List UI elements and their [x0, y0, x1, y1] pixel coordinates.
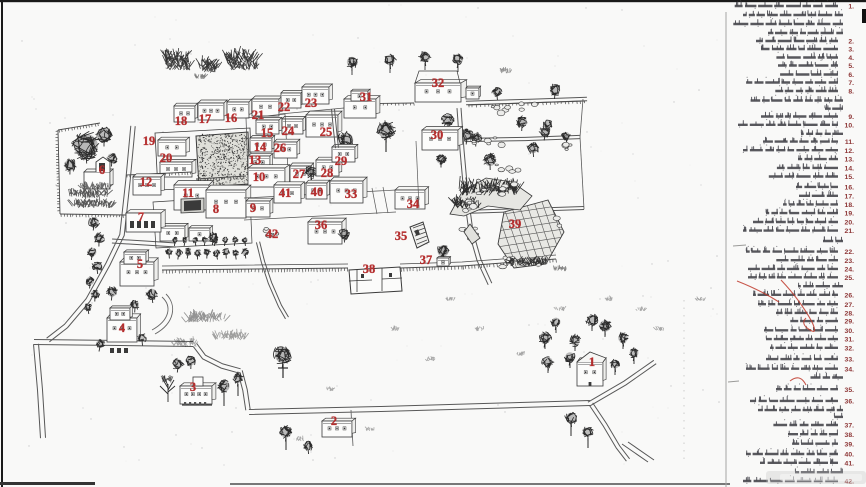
svg-text:4.: 4.	[848, 55, 854, 62]
svg-text:33.: 33.	[845, 357, 855, 364]
svg-text:15.: 15.	[845, 174, 855, 181]
svg-text:2.: 2.	[848, 39, 854, 46]
svg-text:41: 41	[279, 186, 291, 200]
svg-text:18: 18	[175, 114, 187, 128]
svg-text:14.: 14.	[845, 166, 855, 173]
svg-text:32.: 32.	[845, 345, 855, 352]
svg-text:8.: 8.	[848, 89, 854, 96]
svg-text:30.: 30.	[845, 328, 855, 335]
svg-text:12.: 12.	[845, 148, 855, 155]
svg-text:21.: 21.	[845, 228, 855, 235]
svg-text:3: 3	[190, 380, 196, 394]
svg-text:10.: 10.	[845, 122, 855, 129]
svg-text:38.: 38.	[845, 432, 855, 439]
svg-text:6: 6	[99, 163, 105, 177]
svg-text:31.: 31.	[845, 337, 855, 344]
svg-text:15: 15	[261, 126, 273, 140]
svg-text:26: 26	[274, 141, 286, 155]
svg-text:36: 36	[315, 218, 327, 232]
svg-text:1: 1	[589, 355, 595, 369]
svg-text:37.: 37.	[845, 423, 855, 430]
svg-text:39.: 39.	[845, 441, 855, 448]
svg-text:38: 38	[363, 262, 375, 276]
svg-text:21: 21	[252, 108, 264, 122]
svg-text:39: 39	[509, 217, 521, 231]
svg-text:20: 20	[160, 151, 172, 165]
svg-text:8: 8	[213, 202, 219, 216]
svg-text:28.: 28.	[845, 311, 855, 318]
svg-text:40.: 40.	[845, 452, 855, 459]
svg-text:6.: 6.	[848, 72, 854, 79]
svg-text:7.: 7.	[848, 80, 854, 87]
svg-text:34.: 34.	[845, 366, 855, 373]
svg-text:17: 17	[199, 112, 211, 126]
svg-text:13.: 13.	[845, 157, 855, 164]
svg-text:35: 35	[395, 229, 407, 243]
svg-text:9: 9	[250, 201, 256, 215]
svg-text:2: 2	[331, 414, 337, 428]
svg-text:19: 19	[143, 134, 155, 148]
svg-text:40: 40	[311, 185, 323, 199]
svg-text:26.: 26.	[845, 292, 855, 299]
svg-text:13: 13	[249, 153, 261, 167]
svg-text:24.: 24.	[845, 267, 855, 274]
svg-text:30: 30	[431, 128, 443, 142]
svg-text:5: 5	[137, 257, 143, 271]
svg-text:16.: 16.	[845, 185, 855, 192]
svg-text:4: 4	[119, 321, 125, 335]
svg-text:22.: 22.	[845, 249, 855, 256]
svg-text:37: 37	[420, 253, 432, 267]
svg-text:23: 23	[305, 96, 317, 110]
svg-text:25: 25	[320, 125, 332, 139]
svg-text:1.: 1.	[848, 4, 854, 11]
svg-text:19.: 19.	[845, 211, 855, 218]
svg-text:35.: 35.	[845, 387, 855, 394]
svg-text:22: 22	[278, 100, 290, 114]
svg-text:17.: 17.	[845, 193, 855, 200]
svg-text:27: 27	[293, 167, 305, 181]
svg-text:7: 7	[138, 210, 144, 224]
svg-text:12: 12	[140, 175, 152, 189]
svg-text:28: 28	[321, 166, 333, 180]
svg-text:9.: 9.	[848, 114, 854, 121]
svg-text:25.: 25.	[845, 275, 855, 282]
svg-text:34: 34	[407, 197, 419, 211]
svg-text:16: 16	[225, 111, 237, 125]
svg-text:32: 32	[432, 76, 444, 90]
svg-text:41.: 41.	[845, 460, 855, 467]
svg-text:3.: 3.	[848, 47, 854, 54]
svg-text:33: 33	[345, 187, 357, 201]
svg-text:10: 10	[253, 170, 265, 184]
svg-text:23.: 23.	[845, 258, 855, 265]
svg-text:24: 24	[282, 124, 294, 138]
svg-text:11: 11	[182, 186, 194, 200]
svg-text:29.: 29.	[845, 319, 855, 326]
svg-text:31: 31	[360, 90, 372, 104]
svg-text:29: 29	[335, 154, 347, 168]
svg-text:42: 42	[266, 227, 278, 241]
svg-text:5.: 5.	[848, 63, 854, 70]
svg-text:20.: 20.	[845, 220, 855, 227]
svg-text:11.: 11.	[845, 139, 854, 146]
svg-text:36.: 36.	[845, 399, 855, 406]
svg-text:14: 14	[254, 140, 266, 154]
svg-text:27.: 27.	[845, 302, 855, 309]
svg-text:18.: 18.	[845, 202, 855, 209]
